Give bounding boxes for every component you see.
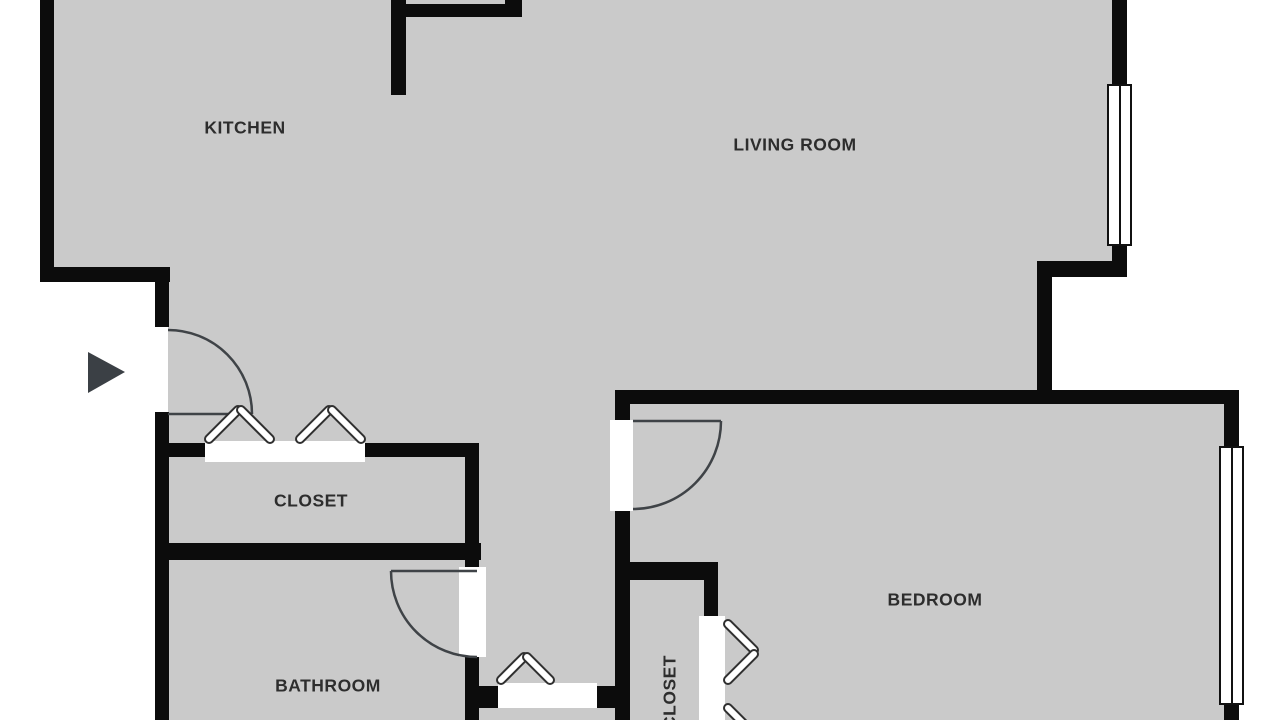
floor-plan: KITCHEN LIVING ROOM CLOSET BATHROOM BEDR…	[0, 0, 1280, 720]
closet-bifold-doors	[209, 410, 361, 439]
bedroom-closet-bifold-doors	[728, 624, 754, 720]
entry-door-swing	[168, 330, 252, 414]
bedroom-door-swing	[633, 421, 721, 509]
bedroom-label: BEDROOM	[888, 591, 983, 609]
bathroom-door-swing	[391, 571, 477, 657]
closet-label: CLOSET	[274, 492, 348, 510]
entry-arrow-icon	[88, 352, 125, 393]
hall-bifold-door	[501, 657, 550, 680]
bedroom-closet-label: CLOSET	[661, 655, 679, 720]
bathroom-label: BATHROOM	[275, 677, 381, 695]
living-room-label: LIVING ROOM	[733, 136, 856, 154]
kitchen-label: KITCHEN	[204, 119, 285, 137]
symbols-overlay	[0, 0, 1280, 720]
